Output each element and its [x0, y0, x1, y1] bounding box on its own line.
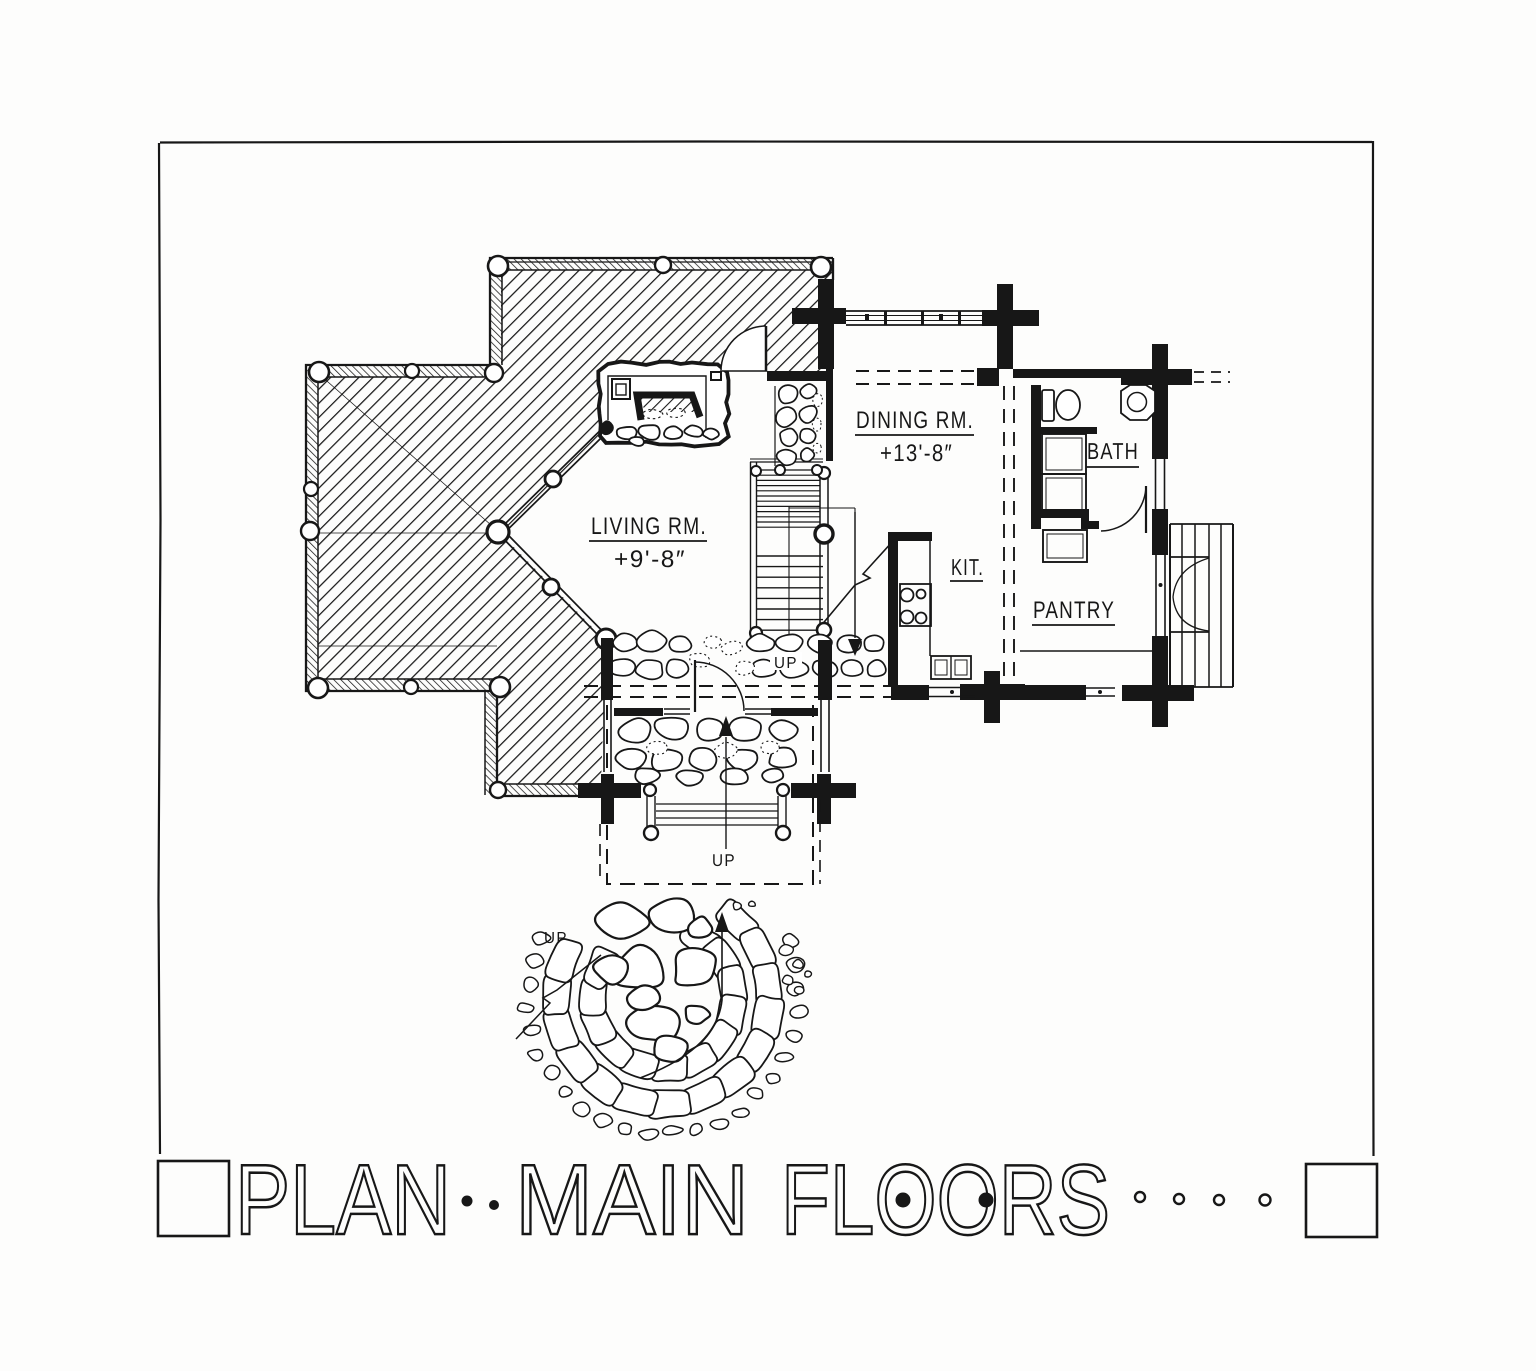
svg-text:UP: UP — [774, 655, 798, 672]
svg-text:LIVING RM.: LIVING RM. — [591, 513, 707, 540]
svg-text:KIT.: KIT. — [951, 554, 984, 580]
svg-text:MAIN: MAIN — [515, 1144, 749, 1256]
svg-text:UP: UP — [712, 851, 736, 870]
svg-text:+9'-8″: +9'-8″ — [614, 546, 686, 573]
svg-text:+13'-8″: +13'-8″ — [880, 440, 953, 467]
svg-text:PANTRY: PANTRY — [1033, 597, 1115, 624]
svg-text:UP: UP — [544, 930, 568, 947]
svg-text:BATH: BATH — [1087, 438, 1139, 464]
svg-text:FLOORS: FLOORS — [781, 1144, 1110, 1256]
svg-text:DINING RM.: DINING RM. — [856, 407, 974, 434]
svg-text:PLAN: PLAN — [235, 1144, 451, 1256]
